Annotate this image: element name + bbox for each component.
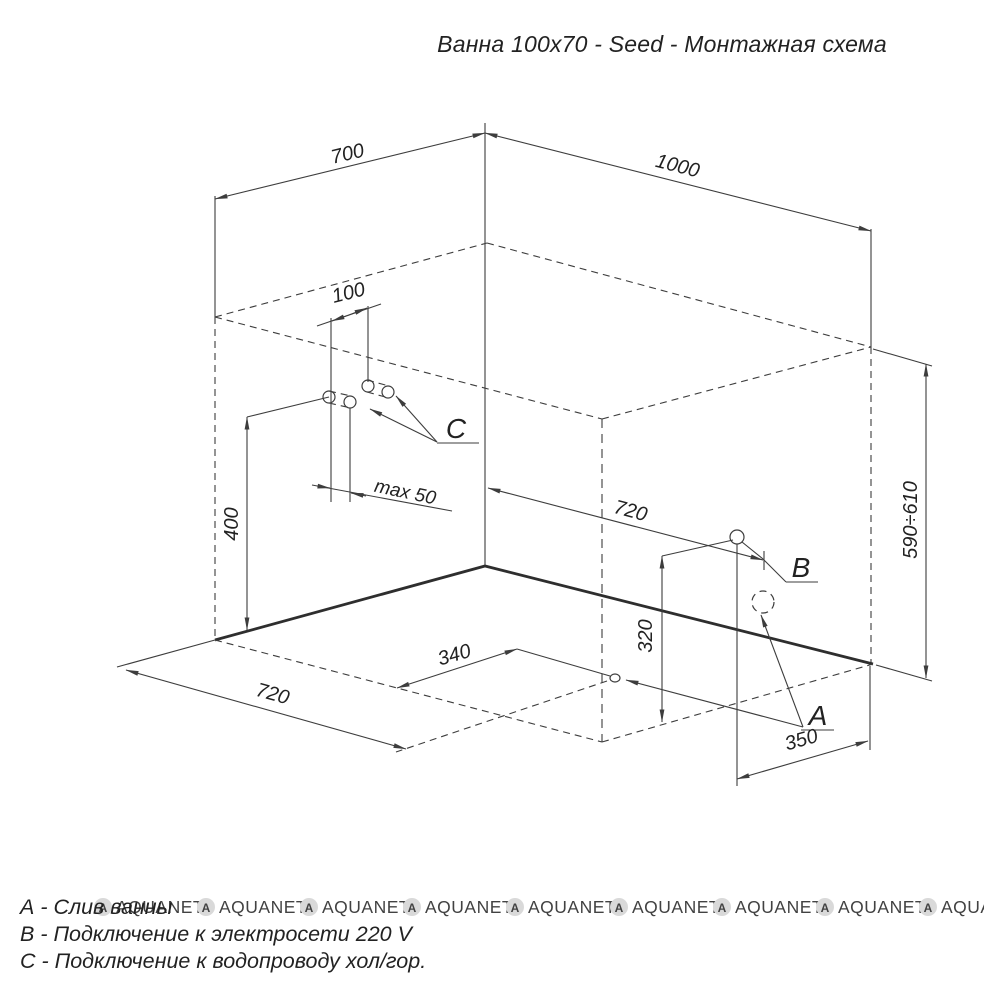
drain-point xyxy=(610,674,620,682)
dim-590-610-value: 590÷610 xyxy=(900,481,922,559)
rim-front-right-edge xyxy=(602,347,871,419)
dim-320-value: 320 xyxy=(635,619,657,652)
legend-line-water: С - Подключение к водопроводу хол/гор. xyxy=(20,949,426,973)
dim-drain-along-wall: 720 xyxy=(117,640,406,749)
dim-720-floor-value: 720 xyxy=(254,679,292,709)
page-title: Ванна 100x70 - Seed - Монтажная схема xyxy=(437,31,887,57)
aquanet-watermark xyxy=(610,897,720,917)
dim-rim-height: 590÷610 xyxy=(873,349,932,681)
legend-line-electric: В - Подключение к электросети 220 V xyxy=(20,922,415,946)
aquanet-watermark xyxy=(919,897,984,917)
dim-electric-from-right: 350 xyxy=(737,666,870,779)
drain-wall-hole xyxy=(752,591,774,613)
rim-back-left-edge xyxy=(215,243,487,317)
dim-water-height: 400 xyxy=(221,397,329,630)
bath-floor-outline xyxy=(215,640,873,742)
pipe-cold-front xyxy=(344,396,356,408)
dim-drain-from-front: 340 xyxy=(397,640,610,688)
dim-400-value: 400 xyxy=(221,507,243,540)
dim-100-value: 100 xyxy=(330,278,368,307)
dim-350-value: 350 xyxy=(782,725,820,755)
legend-line-drain: А - Слив ванны xyxy=(18,895,173,919)
room-walls xyxy=(215,123,873,664)
aquanet-watermark xyxy=(300,897,410,917)
dim-700-value: 700 xyxy=(329,140,367,169)
montage-scheme-page: Ванна 100x70 - Seed - Монтажная схема 70… xyxy=(0,0,984,1000)
label-water-connection: C xyxy=(446,413,467,444)
label-a-group: A xyxy=(626,615,834,731)
aquanet-watermark xyxy=(713,897,823,917)
pipe-hot-front xyxy=(382,386,394,398)
water-pipes xyxy=(323,380,394,408)
dim-top-width: 700 xyxy=(215,133,485,199)
dim-electric-along-wall: 720 xyxy=(488,488,764,570)
rim-back-right-edge xyxy=(487,243,871,347)
label-c-group: C xyxy=(370,396,479,444)
aquanet-watermark xyxy=(506,897,616,917)
aquanet-watermark xyxy=(197,897,307,917)
dim-top-length: 1000 xyxy=(485,133,871,231)
rim-front-left-edge xyxy=(215,317,602,419)
electric-outlet-point xyxy=(730,530,744,544)
drain-wall-outlet xyxy=(752,591,774,613)
dim-340-value: 340 xyxy=(435,640,473,670)
dim-electric-height: 320 xyxy=(635,540,733,722)
drain-floor xyxy=(396,674,620,752)
watermark-row: A AQUANET xyxy=(94,897,984,917)
dim-pipes-protrusion: max 50 xyxy=(312,408,452,511)
aquanet-watermark xyxy=(403,897,513,917)
dim-max50-value: max 50 xyxy=(372,476,438,510)
aquanet-watermark xyxy=(816,897,926,917)
montage-diagram: Ванна 100x70 - Seed - Монтажная схема 70… xyxy=(0,0,984,1000)
label-electric-connection: B xyxy=(792,552,811,583)
bath-rim-outline xyxy=(215,243,871,742)
